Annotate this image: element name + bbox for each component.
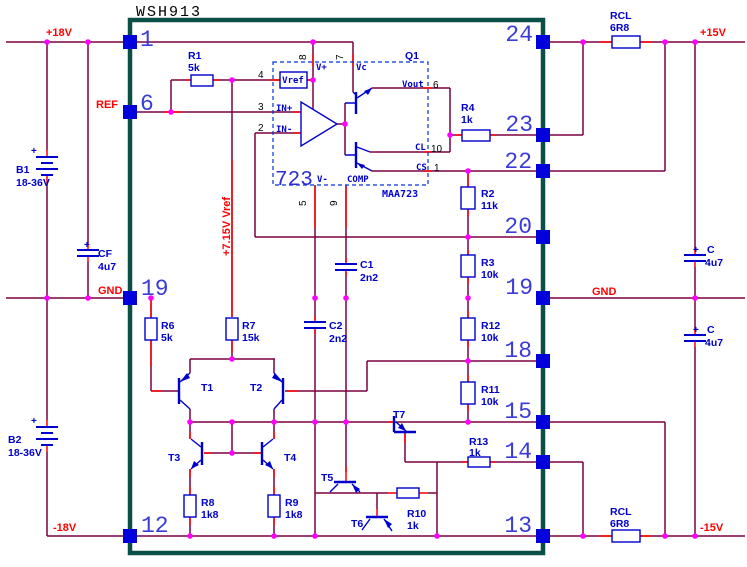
- label-c-lower-value: 4u7: [705, 337, 723, 349]
- label-r7-value: 15k: [242, 332, 260, 344]
- resistor-r9: [268, 495, 280, 517]
- label-r11-value: 10k: [481, 396, 499, 408]
- label-r11-name: R11: [481, 384, 500, 396]
- label-r10-name: R10: [407, 508, 426, 520]
- label-c-lower-plus: +: [693, 325, 699, 336]
- label-r13-value: 1k: [469, 447, 481, 459]
- pin-label-12: 12: [141, 513, 169, 539]
- ic-label-cl: CL: [415, 143, 426, 153]
- resistor-r8: [184, 495, 196, 517]
- label-b2-plus: +: [31, 416, 37, 427]
- net-label-plus15v: +15V: [700, 27, 727, 39]
- label-r12-value: 10k: [481, 332, 499, 344]
- label-c-upper-plus: +: [693, 245, 699, 256]
- ic-part-label: MAA723: [382, 189, 418, 200]
- label-t6: T6: [351, 518, 363, 530]
- ic-pin-9: 9: [329, 200, 340, 206]
- label-r8-value: 1k8: [201, 509, 219, 521]
- label-c1-value: 2n2: [360, 272, 378, 284]
- schematic-drawing: WSH913 1 6 19 12 24 23 22 20 19 18 15 14…: [0, 0, 747, 567]
- ic-pin-10: 10: [431, 144, 443, 155]
- transistor-t2-icon: [272, 373, 283, 409]
- pin-label-15: 15: [504, 399, 532, 425]
- transistor-t4-icon: [262, 439, 273, 469]
- pin-square-12: [123, 529, 137, 543]
- resistor-rcl-bottom: [612, 530, 640, 542]
- ic-pin-3: 3: [258, 102, 264, 113]
- label-r8-name: R8: [201, 497, 215, 509]
- label-rcl-bottom-value: 6R8: [610, 518, 629, 530]
- ic-type-label: 723: [275, 169, 313, 192]
- label-b2-value: 18-36V: [8, 447, 42, 459]
- label-r1-name: R1: [188, 50, 202, 62]
- label-t2: T2: [250, 382, 262, 394]
- label-cf-plus: +: [84, 240, 90, 251]
- pin-label-24: 24: [505, 22, 533, 48]
- label-t1: T1: [201, 382, 213, 394]
- transistor-t3-icon: [191, 439, 202, 469]
- label-rcl-bottom-name: RCL: [610, 506, 632, 518]
- ic-label-comp: COMP: [347, 175, 369, 185]
- battery-b2-icon: [36, 427, 58, 445]
- resistor-r11: [461, 382, 475, 404]
- ic-label-in-plus: IN+: [276, 104, 293, 114]
- opamp-triangle-icon: [301, 102, 337, 146]
- net-label-gnd-left: GND: [98, 285, 123, 297]
- label-r3-name: R3: [481, 257, 495, 269]
- module-title: WSH913: [136, 4, 202, 21]
- resistor-r12: [461, 318, 475, 340]
- pin-label-20: 20: [504, 214, 532, 240]
- capacitor-c2: [304, 322, 326, 328]
- resistor-r3: [461, 255, 475, 277]
- pin-square-14: [536, 455, 550, 469]
- transistor-t1-icon: [179, 373, 190, 409]
- label-r1-value: 5k: [188, 62, 200, 74]
- net-label-minus15v: -15V: [700, 522, 724, 534]
- ic-label-in-minus: IN-: [276, 125, 292, 135]
- label-t5: T5: [321, 472, 333, 484]
- pin-label-1: 1: [140, 27, 154, 53]
- ic-label-vc: Vc: [356, 63, 367, 73]
- label-b2-name: B2: [8, 434, 22, 446]
- transistor-t5-icon: [330, 482, 360, 493]
- ic-label-vminus: V-: [317, 175, 328, 185]
- pin-label-22: 22: [504, 149, 532, 175]
- net-label-vref-rail: +7.15V Vref: [221, 197, 233, 256]
- resistor-r4: [462, 130, 490, 141]
- pin-square-20: [536, 230, 550, 244]
- label-r10-value: 1k: [407, 520, 419, 532]
- net-label-minus18v: -18V: [53, 522, 77, 534]
- label-r9-value: 1k8: [285, 509, 303, 521]
- resistor-r6: [145, 318, 157, 340]
- ic-vref-block-label: Vref: [282, 76, 304, 86]
- ic-limit-transistor-icon: [345, 142, 372, 171]
- resistor-rcl-top: [612, 36, 640, 48]
- ic-label-vout: Vout: [402, 80, 424, 90]
- pin-square-19-right: [536, 291, 550, 305]
- label-t7: T7: [393, 409, 405, 421]
- pin-label-13: 13: [504, 513, 532, 539]
- schematic-canvas: WSH913 1 6 19 12 24 23 22 20 19 18 15 14…: [0, 0, 747, 567]
- ic-pin-4: 4: [258, 70, 264, 81]
- capacitor-c1: [335, 264, 357, 270]
- pin-square-15: [536, 415, 550, 429]
- ic-designator-label: Q1: [405, 50, 419, 62]
- label-r7-name: R7: [242, 320, 256, 332]
- transistor-t6-icon: [362, 517, 392, 531]
- ic-pin-2: 2: [258, 123, 264, 134]
- pin-label-14: 14: [504, 439, 532, 465]
- pin-square-6: [123, 105, 137, 119]
- resistor-r7: [226, 318, 238, 340]
- resistor-r10: [397, 488, 419, 498]
- label-r12-name: R12: [481, 320, 500, 332]
- label-cf-value: 4u7: [98, 261, 116, 273]
- ic-label-cs: CS: [416, 163, 427, 173]
- label-t3: T3: [168, 452, 180, 464]
- label-b1-name: B1: [16, 164, 30, 176]
- pin-square-19-left: [123, 291, 137, 305]
- label-rcl-top-name: RCL: [610, 10, 632, 22]
- pin-square-1: [123, 35, 137, 49]
- ic-pin-6: 6: [433, 80, 439, 91]
- pin-square-18: [536, 354, 550, 368]
- pin-label-18: 18: [504, 338, 532, 364]
- label-cf-name: CF: [98, 248, 113, 260]
- label-c-lower-name: C: [707, 324, 715, 336]
- label-b1-value: 18-36V: [16, 177, 50, 189]
- label-r4-name: R4: [461, 102, 475, 114]
- pin-label-19-left: 19: [141, 276, 169, 302]
- resistor-r2: [461, 187, 475, 209]
- label-rcl-top-value: 6R8: [610, 22, 629, 34]
- ic-output-transistor-icon: [345, 88, 372, 114]
- label-c-upper-value: 4u7: [705, 257, 723, 269]
- label-c2-name: C2: [329, 320, 343, 332]
- label-b1-plus: +: [31, 146, 37, 157]
- pin-label-23: 23: [505, 112, 533, 138]
- net-label-gnd-right: GND: [592, 286, 617, 298]
- pin-square-22: [536, 164, 550, 178]
- ic-pin-7: 7: [335, 54, 346, 60]
- pin-label-19-right: 19: [505, 275, 533, 301]
- label-r6-value: 5k: [161, 332, 173, 344]
- resistor-r1: [191, 75, 213, 86]
- label-t4: T4: [284, 452, 296, 464]
- ic-pin-8: 8: [298, 54, 309, 60]
- ic-pin-5: 5: [298, 200, 309, 206]
- label-r6-name: R6: [161, 320, 175, 332]
- net-label-plus18v: +18V: [46, 27, 73, 39]
- label-r3-value: 10k: [481, 269, 499, 281]
- pin-square-23: [536, 128, 550, 142]
- ic-pin-1: 1: [434, 163, 440, 174]
- label-r2-name: R2: [481, 188, 495, 200]
- module-outline: [130, 20, 543, 553]
- label-c1-name: C1: [360, 259, 374, 271]
- label-r9-name: R9: [285, 497, 299, 509]
- pin-label-6: 6: [140, 91, 154, 117]
- net-label-ref: REF: [96, 99, 118, 111]
- label-c2-value: 2n2: [329, 333, 347, 345]
- label-c-upper-name: C: [707, 244, 715, 256]
- battery-b1-icon: [36, 157, 58, 175]
- label-r2-value: 11k: [481, 200, 498, 212]
- ic-label-vplus: V+: [316, 63, 327, 73]
- pin-square-13: [536, 529, 550, 543]
- label-r4-value: 1k: [461, 114, 473, 126]
- pin-square-24: [536, 35, 550, 49]
